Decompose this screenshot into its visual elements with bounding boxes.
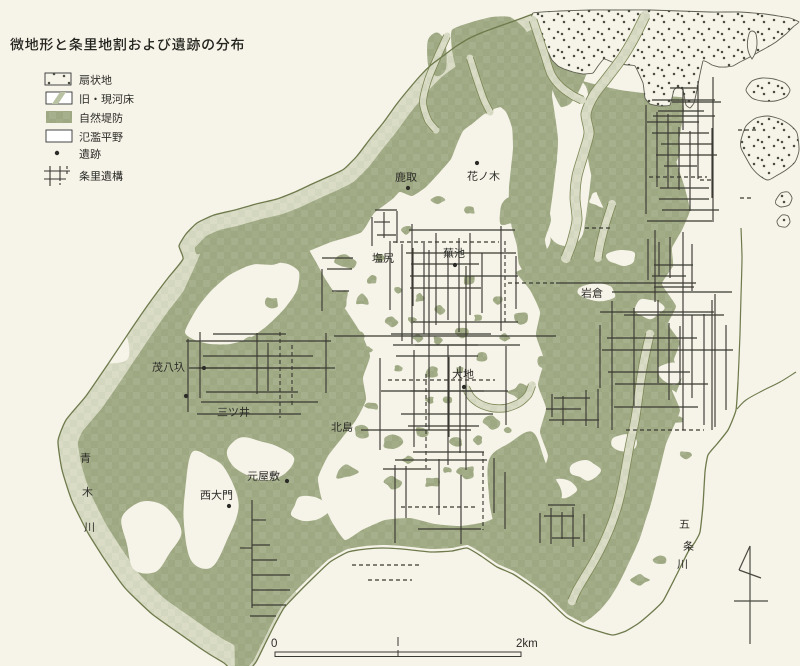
svg-text:2km: 2km — [516, 638, 538, 650]
svg-text:0: 0 — [271, 638, 277, 650]
